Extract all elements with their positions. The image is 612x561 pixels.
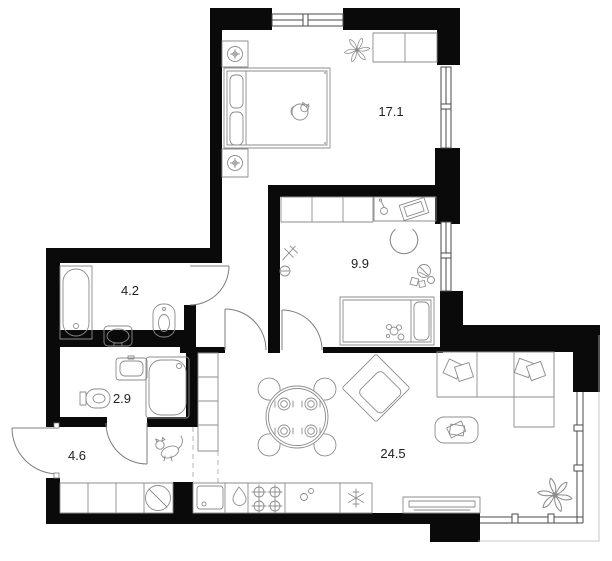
washbasin-icon [116, 356, 147, 380]
room-label-living-kitchen: 24.5 [380, 446, 405, 461]
corner-sofa-icon [437, 352, 554, 427]
fridge-icon [348, 489, 364, 507]
teddy-bear-icon [386, 324, 404, 340]
kitchen-sink-icon [197, 486, 223, 509]
kitchen-counter [60, 483, 372, 513]
shower-wc-fixtures [80, 356, 189, 418]
living-room-furniture [258, 352, 577, 517]
desk-chair-icon [385, 220, 424, 259]
bedroom-furniture [222, 33, 437, 177]
bathroom-door-icon [190, 266, 229, 305]
laptop-icon [399, 197, 429, 220]
stove-icon [252, 485, 282, 513]
toy-blocks-icon [410, 277, 434, 288]
hall-door-icon [225, 309, 266, 350]
shower-wc-door-icon [106, 423, 147, 464]
washing-machine-icon [146, 486, 171, 511]
cat-icon [156, 436, 183, 461]
armchair-icon [342, 354, 410, 422]
windows [272, 14, 599, 541]
room-label-bathroom: 4.2 [121, 283, 139, 298]
toy-ring-icon [280, 266, 290, 276]
floor-plan: 17.1 9.9 4.2 2.9 4.6 24.5 [0, 0, 612, 561]
wardrobe-icon [281, 197, 373, 222]
kettle-icon [233, 487, 246, 506]
tv-console-icon [403, 497, 480, 513]
single-bed-icon [340, 297, 434, 345]
plant-icon [533, 473, 577, 516]
counter-items-icon [301, 489, 314, 501]
shower-cabin-icon [146, 357, 189, 418]
room-label-hallway: 4.6 [68, 448, 86, 463]
cat-icon [291, 103, 309, 121]
kids-room-door-icon [282, 310, 322, 350]
kids-room-furniture [278, 197, 436, 345]
wardrobe-icon [373, 33, 437, 62]
built-in-closet-icon [198, 353, 218, 451]
entrance-door-icon [12, 423, 59, 478]
nightstand-lamp-icon [222, 149, 248, 177]
toilet-icon [80, 389, 110, 408]
desk-icon [374, 197, 436, 221]
room-label-kids-room: 9.9 [351, 256, 369, 271]
kids-room-window-icon [441, 222, 451, 291]
walls [46, 8, 600, 542]
dining-table-icon [258, 378, 336, 456]
plant-icon [344, 38, 370, 63]
nightstand-lamp-icon [222, 41, 248, 67]
coffee-table-icon [435, 417, 478, 443]
room-label-shower-wc: 2.9 [113, 391, 131, 406]
double-bed-icon [224, 68, 330, 148]
bathtub-icon [60, 266, 92, 339]
toy-ball-icon [418, 265, 431, 278]
toy-plane-icon [278, 243, 300, 263]
room-label-bedroom: 17.1 [378, 104, 403, 119]
bedroom-side-window-icon [441, 67, 451, 148]
bedroom-top-window-icon [272, 14, 343, 26]
desk-lamp-icon [379, 199, 387, 215]
panoramic-glazing-icon [480, 392, 583, 523]
